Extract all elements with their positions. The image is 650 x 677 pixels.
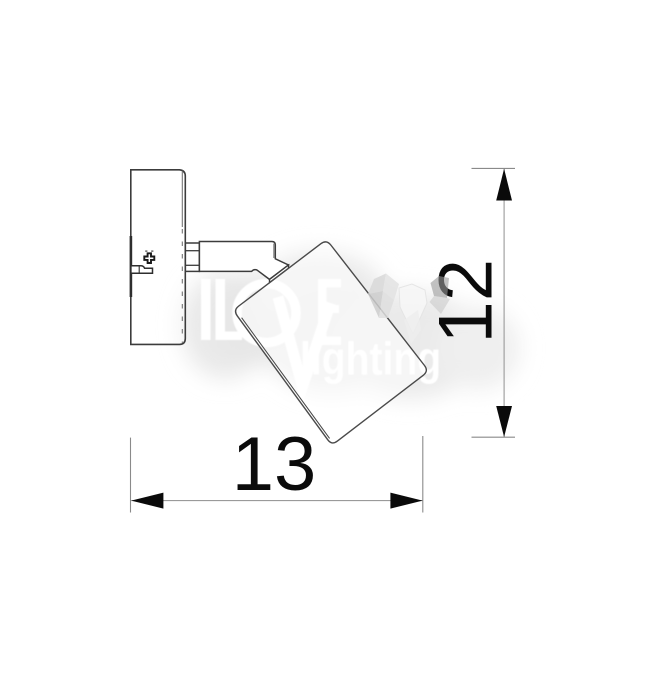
- svg-text:13: 13: [232, 422, 317, 507]
